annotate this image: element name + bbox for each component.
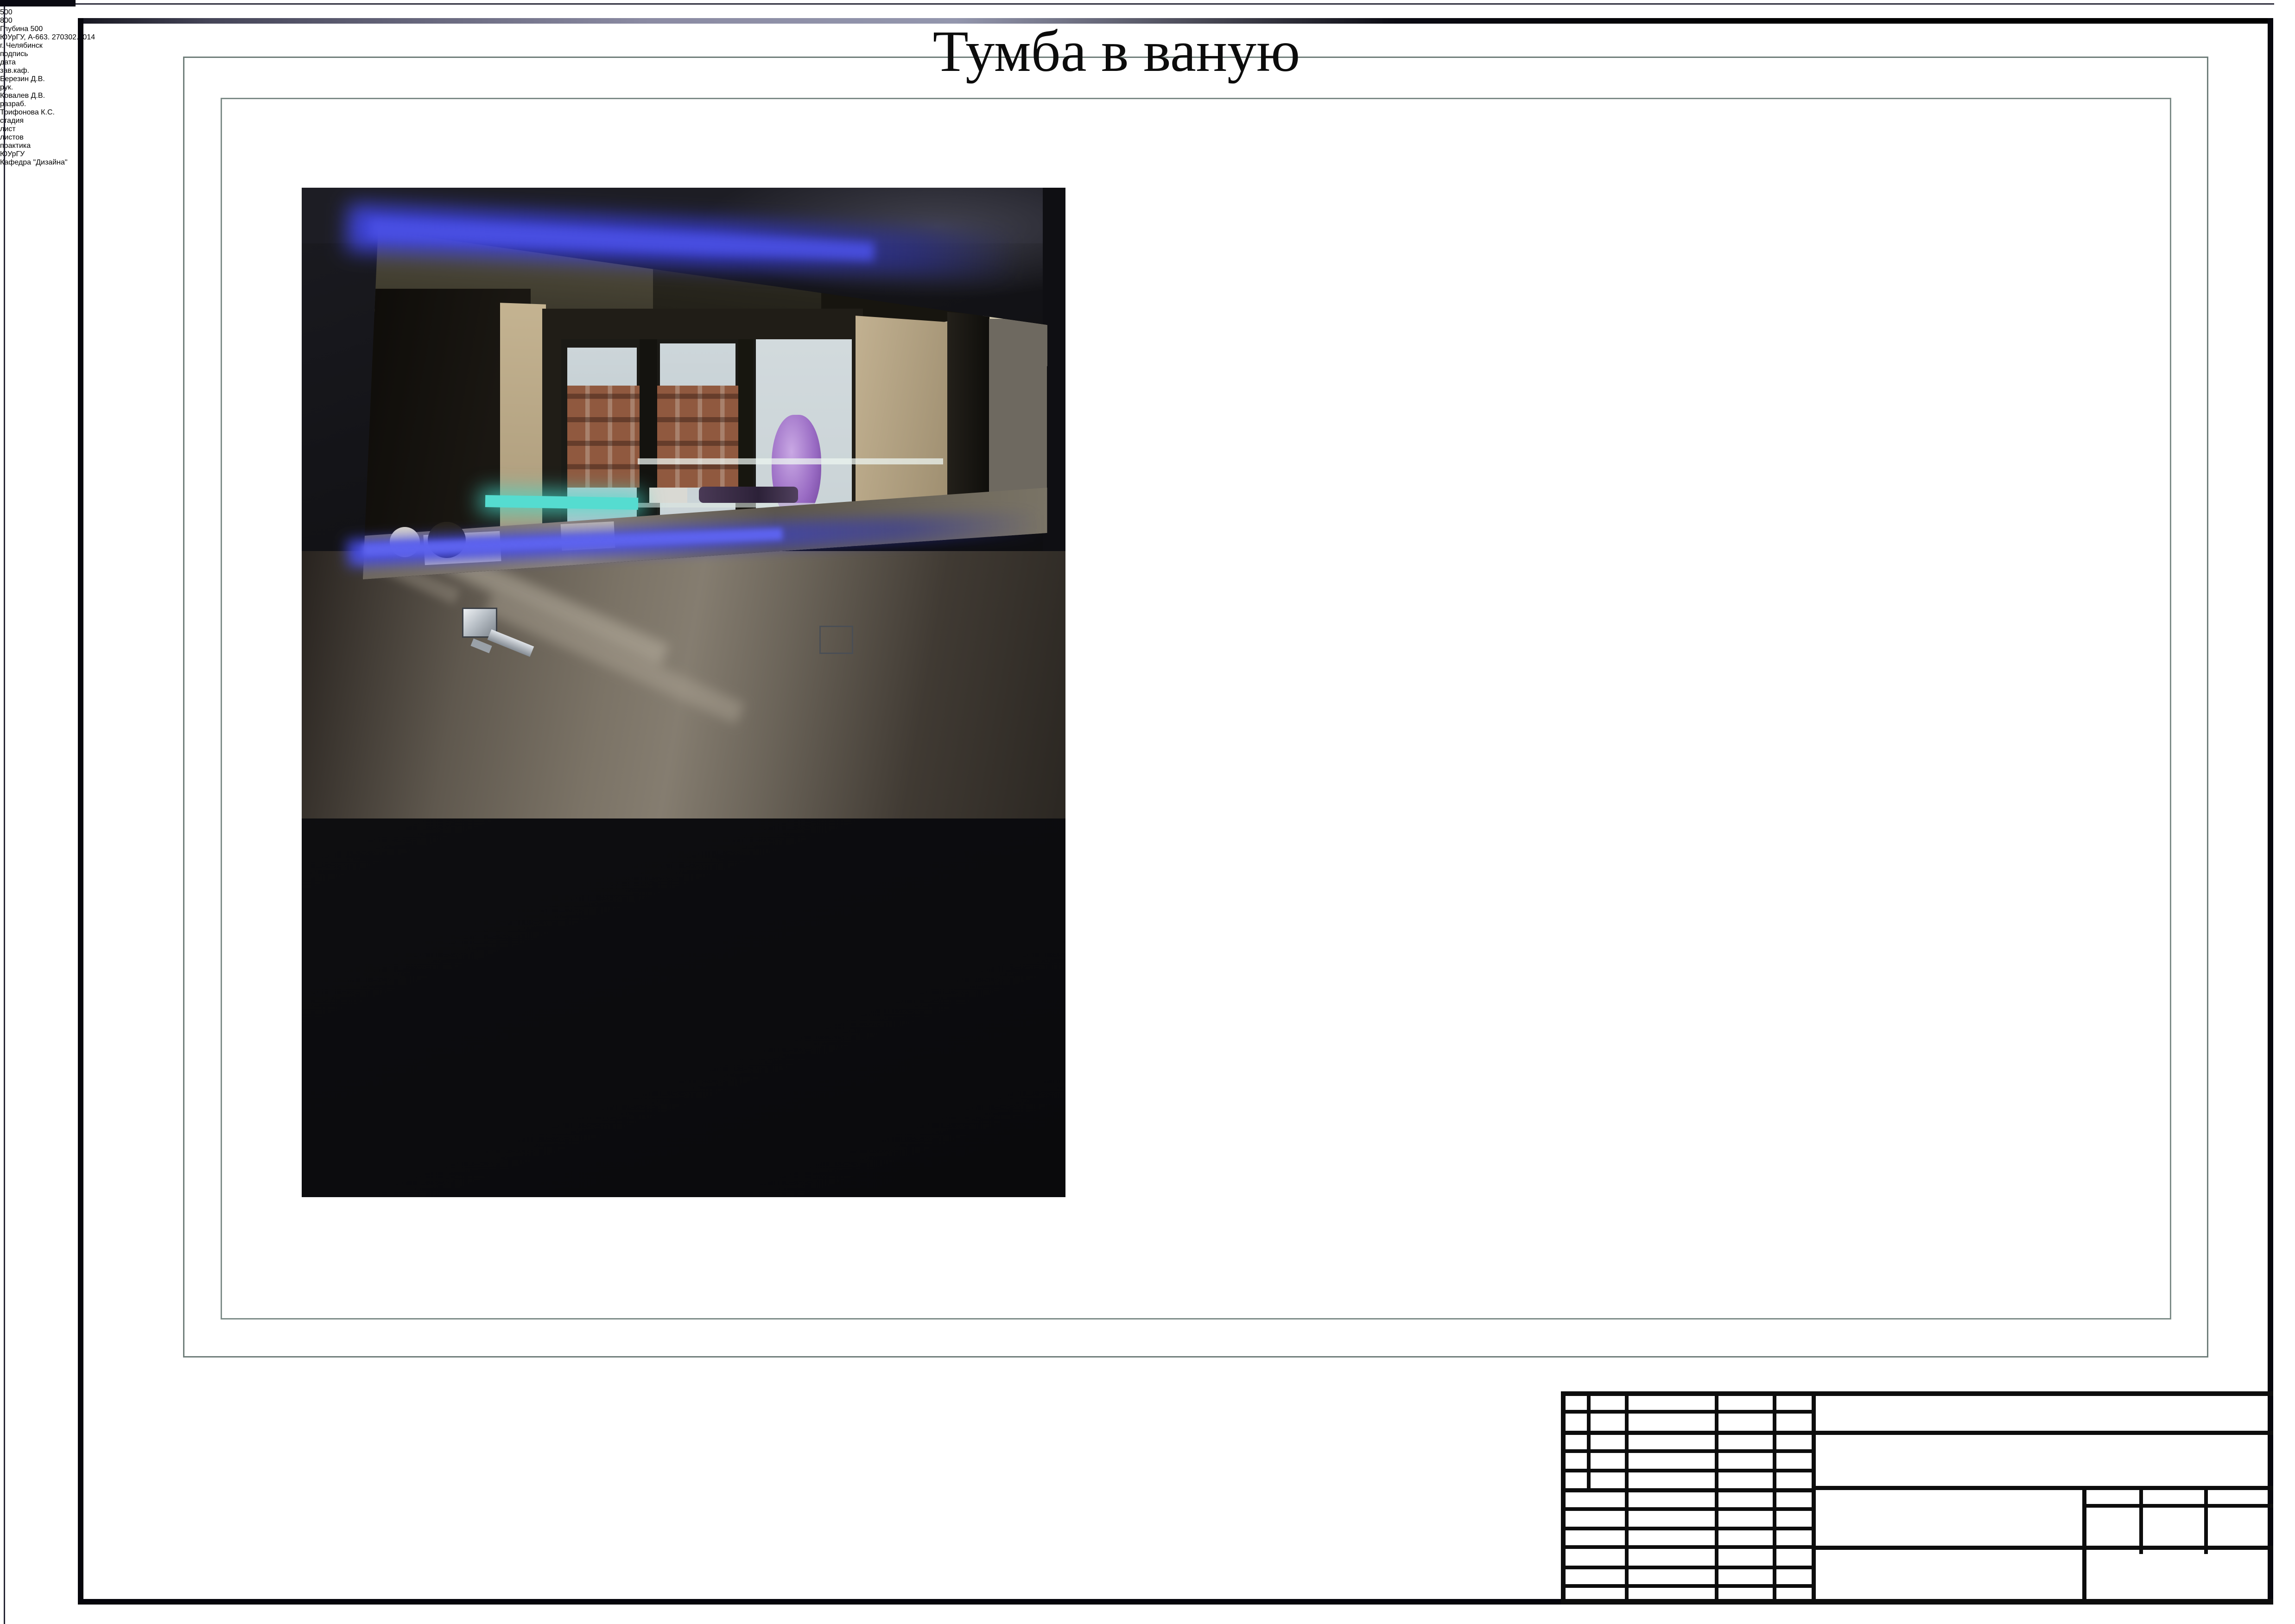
titleblock-line [1625, 1391, 1629, 1605]
titleblock-line [1587, 1391, 1591, 1492]
titleblock-line [1561, 1599, 2273, 1605]
titleblock-line [2082, 1504, 2273, 1508]
page-title: Тумба в ваную [933, 19, 1300, 85]
titleblock-line [2139, 1486, 2143, 1554]
titleblock-line [2204, 1486, 2208, 1554]
titleblock-line [2082, 1486, 2086, 1605]
titleblock-line [1715, 1391, 1718, 1605]
faucet-right [819, 626, 853, 654]
titleblock-line [1812, 1391, 1816, 1605]
page-corner-bar [0, 0, 76, 6]
left-width-dimension-label: 500 [0, 8, 2295, 17]
page-top-line [76, 3, 2274, 5]
bathroom-photo [302, 188, 1065, 1197]
titleblock-line [1773, 1391, 1776, 1605]
titleblock-line [1561, 1431, 2273, 1435]
shelf-towels [649, 488, 687, 503]
page-left-line [4, 6, 5, 1624]
shelf-towels [699, 487, 798, 503]
titleblock-line [1561, 1391, 2273, 1396]
drawing-sheet: Тумба в ваную [0, 0, 2295, 1624]
titleblock-line [1561, 1391, 1566, 1605]
glass-shelf [638, 458, 943, 464]
brick-building [567, 386, 747, 488]
